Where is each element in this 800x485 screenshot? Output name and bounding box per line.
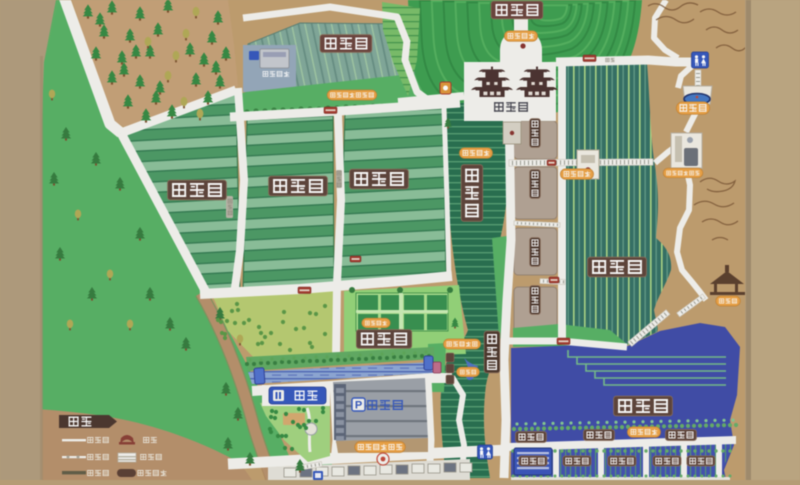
svg-text:P: P xyxy=(355,400,362,412)
